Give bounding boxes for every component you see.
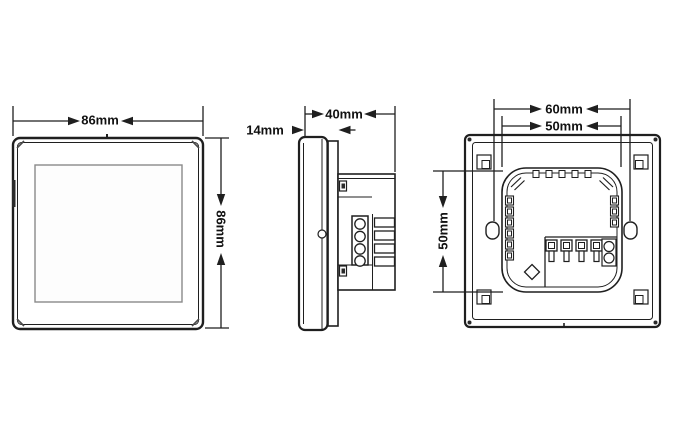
- side-panel-dimension: [292, 126, 356, 134]
- corner-screw: [654, 321, 658, 325]
- side-back-module: [338, 174, 395, 290]
- module-right-clips: [611, 196, 619, 227]
- front-height-label: 86mm: [215, 210, 228, 248]
- side-seam-button: [318, 230, 326, 238]
- front-width-label: 86mm: [81, 114, 119, 127]
- corner-screw: [468, 138, 472, 142]
- side-back-lip: [328, 141, 338, 326]
- corner-screw: [654, 138, 658, 142]
- back-width-label: 50mm: [545, 120, 583, 133]
- corner-screw: [468, 321, 472, 325]
- back-hole-spacing-label: 60mm: [545, 103, 583, 116]
- thermostat-three-view-drawing: [0, 0, 688, 446]
- mounting-hole-left: [486, 222, 499, 239]
- back-module: [502, 168, 622, 292]
- side-panel-thickness-label: 14mm: [246, 124, 284, 137]
- front-side-button: [12, 180, 16, 207]
- side-depth-label: 40mm: [325, 108, 363, 121]
- front-view: [12, 134, 203, 329]
- back-height-label: 50mm: [437, 212, 450, 250]
- side-view: [299, 137, 395, 330]
- dimension-diagram: 86mm 86mm 14mm 40mm 60mm 50mm 50mm: [0, 0, 688, 446]
- front-screen: [35, 165, 182, 302]
- mounting-hole-right: [624, 222, 637, 239]
